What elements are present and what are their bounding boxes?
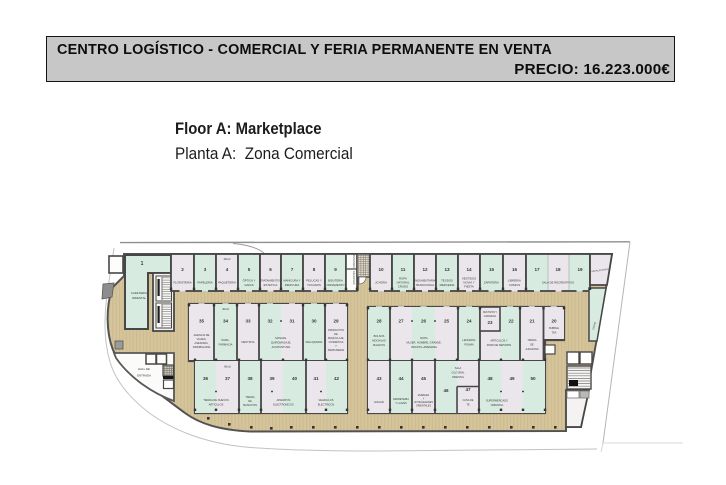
svg-text:SALA: SALA — [455, 367, 462, 370]
svg-text:MANICURA Y: MANICURA Y — [283, 279, 300, 283]
svg-text:BUBBLE: BUBBLE — [549, 327, 559, 330]
svg-text:TOCADOS: TOCADOS — [307, 283, 321, 287]
svg-text:21: 21 — [529, 319, 535, 324]
svg-text:DE: DE — [248, 400, 252, 403]
svg-text:CARNAVAL: CARNAVAL — [484, 315, 497, 318]
svg-text:SUPERMERCADO: SUPERMERCADO — [486, 399, 508, 403]
svg-text:MERCERIA: MERCERIA — [440, 283, 455, 287]
svg-text:22: 22 — [508, 319, 514, 324]
svg-text:ARTICULOS Y: ARTICULOS Y — [490, 339, 507, 343]
svg-text:ORIENTAL: ORIENTAL — [452, 376, 465, 379]
svg-text:ASCENSOR: ASCENSOR — [352, 271, 355, 285]
svg-text:TIENDA DE NUEVOS: TIENDA DE NUEVOS — [203, 398, 229, 402]
svg-text:42: 42 — [334, 376, 340, 381]
svg-text:MUJER, HOMBRE, GRANDE,: MUJER, HOMBRE, GRANDE, — [406, 341, 441, 345]
svg-text:FESTIVOS Y: FESTIVOS Y — [483, 311, 497, 314]
svg-text:23: 23 — [488, 320, 493, 325]
svg-text:FARMACIA: FARMACIA — [219, 343, 233, 347]
svg-text:CRUDO: CRUDO — [398, 285, 409, 289]
svg-text:40m2: 40m2 — [224, 257, 231, 261]
svg-text:45: 45 — [421, 376, 427, 381]
svg-text:INMOBILIARIA: INMOBILIARIA — [193, 345, 211, 349]
svg-text:38: 38 — [247, 376, 253, 381]
svg-text:31: 31 — [289, 319, 295, 324]
svg-text:TEJIDOS: TEJIDOS — [441, 279, 453, 283]
svg-text:LIBRERIA: LIBRERIA — [508, 279, 521, 283]
svg-text:ÓPTICA Y: ÓPTICA Y — [243, 278, 256, 283]
svg-text:JOYERIA: JOYERIA — [375, 281, 387, 285]
svg-text:FERRETERIA: FERRETERIA — [393, 398, 409, 401]
svg-text:ENTRADA: ENTRADA — [137, 374, 151, 378]
svg-text:CULTURAL: CULTURAL — [451, 372, 465, 375]
svg-text:ROPA DE DEPORTE: ROPA DE DEPORTE — [487, 343, 512, 347]
svg-text:AGENCIA DE: AGENCIA DE — [194, 333, 210, 337]
svg-text:17: 17 — [534, 267, 540, 272]
svg-text:43: 43 — [376, 376, 382, 381]
svg-text:48: 48 — [487, 376, 493, 381]
svg-text:LENCERIA: LENCERIA — [463, 338, 476, 342]
svg-text:7: 7 — [291, 267, 294, 272]
svg-text:9: 9 — [334, 267, 337, 272]
svg-text:MALETAS: MALETAS — [373, 343, 385, 347]
svg-text:26: 26 — [421, 319, 427, 324]
svg-text:PRODUCTOS: PRODUCTOS — [328, 329, 344, 332]
svg-text:TIENDA: TIENDA — [245, 396, 255, 399]
svg-text:ACUPUNTURA: ACUPUNTURA — [272, 345, 291, 349]
svg-text:50: 50 — [530, 376, 536, 381]
svg-text:ASESORIA,: ASESORIA, — [195, 341, 209, 345]
svg-text:25: 25 — [444, 319, 450, 324]
svg-text:24: 24 — [466, 319, 472, 324]
svg-text:41: 41 — [313, 376, 319, 381]
svg-text:28: 28 — [376, 319, 382, 324]
svg-text:11: 11 — [401, 267, 406, 272]
svg-text:20: 20 — [551, 319, 557, 324]
svg-text:ELECTRONICOS: ELECTRONICOS — [273, 403, 294, 407]
svg-text:2: 2 — [181, 267, 184, 272]
svg-text:PERFUMERIA: PERFUMERIA — [328, 349, 345, 352]
svg-text:TIENDA: TIENDA — [527, 339, 537, 342]
svg-text:DENTISTA: DENTISTA — [241, 340, 254, 344]
svg-text:44: 44 — [398, 376, 404, 381]
svg-text:47: 47 — [465, 387, 471, 392]
svg-text:TRADICIONAL: TRADICIONAL — [416, 283, 435, 287]
svg-text:TE: TE — [466, 404, 470, 407]
svg-text:TRATAMIENTOS: TRATAMIENTOS — [260, 279, 282, 283]
svg-text:COMICS: COMICS — [509, 283, 520, 287]
svg-text:JUGUETES: JUGUETES — [525, 348, 539, 351]
svg-text:BOLSOS: BOLSOS — [374, 334, 385, 338]
svg-text:37: 37 — [225, 376, 231, 381]
svg-text:BISUTERIA: BISUTERIA — [328, 279, 343, 283]
svg-text:12: 12 — [422, 267, 428, 272]
svg-text:5: 5 — [248, 267, 251, 272]
svg-text:ZAPATERIA: ZAPATERIA — [484, 281, 499, 285]
svg-text:ORIENTAL: ORIENTAL — [132, 296, 147, 300]
svg-text:QUIROMASAJE,: QUIROMASAJE, — [271, 341, 292, 345]
svg-text:1: 1 — [141, 261, 144, 267]
svg-text:VEHICULOS: VEHICULOS — [319, 398, 334, 402]
svg-text:TEA: TEA — [552, 332, 557, 335]
svg-text:40m2: 40m2 — [222, 307, 229, 311]
svg-text:ORIENTAL: ORIENTAL — [491, 403, 504, 407]
svg-text:APARATOS: APARATOS — [277, 398, 291, 402]
svg-text:46: 46 — [443, 388, 449, 393]
svg-text:30: 30 — [311, 319, 317, 324]
svg-text:40: 40 — [292, 376, 298, 381]
svg-text:PAPELERIA: PAPELERIA — [197, 281, 212, 285]
svg-text:15: 15 — [489, 267, 495, 272]
svg-text:PELUCAS Y: PELUCAS Y — [306, 279, 322, 283]
svg-text:39: 39 — [269, 376, 275, 381]
svg-text:DE: DE — [334, 333, 338, 336]
svg-text:SALA DE RECREATIVOS: SALA DE RECREATIVOS — [542, 281, 574, 285]
svg-text:18: 18 — [555, 267, 561, 272]
svg-text:29: 29 — [333, 319, 339, 324]
svg-text:4: 4 — [226, 267, 229, 272]
svg-text:PARA-: PARA- — [221, 338, 229, 342]
svg-text:PIJAMA: PIJAMA — [464, 343, 474, 347]
svg-text:MASCOTAS: MASCOTAS — [243, 404, 257, 407]
svg-text:35: 35 — [199, 319, 205, 324]
svg-text:27: 27 — [398, 319, 404, 324]
svg-text:ELECTRICOS: ELECTRICOS — [318, 403, 335, 407]
svg-text:14: 14 — [466, 267, 472, 272]
svg-text:MASAJE,: MASAJE, — [275, 336, 287, 340]
svg-text:36: 36 — [203, 376, 209, 381]
svg-text:8: 8 — [313, 267, 316, 272]
svg-text:FLORISTERIA: FLORISTERIA — [173, 281, 191, 285]
svg-text:10: 10 — [378, 267, 384, 272]
svg-text:FIESTA: FIESTA — [464, 285, 474, 289]
svg-text:CAFETERIA: CAFETERIA — [131, 291, 147, 295]
svg-text:CASA DE: CASA DE — [463, 399, 474, 402]
svg-text:19: 19 — [577, 267, 583, 272]
svg-text:PAQUETERIA: PAQUETERIA — [218, 281, 236, 285]
svg-text:HOGAR: HOGAR — [374, 400, 384, 404]
svg-text:ORNAMENTO: ORNAMENTO — [326, 283, 345, 287]
svg-text:34: 34 — [223, 319, 229, 324]
svg-text:49: 49 — [509, 376, 515, 381]
svg-text:GAFAS: GAFAS — [244, 283, 253, 287]
svg-text:PELUQUERIA: PELUQUERIA — [306, 340, 323, 344]
svg-text:VIAJES,: VIAJES, — [197, 337, 207, 341]
svg-text:INFANTIL+PREMAMA: INFANTIL+PREMAMA — [411, 345, 437, 349]
svg-text:COSMÉTICA: COSMÉTICA — [329, 341, 344, 344]
svg-text:DE: DE — [530, 344, 534, 347]
svg-text:6: 6 — [269, 267, 272, 272]
svg-text:33: 33 — [245, 319, 251, 324]
svg-text:Y LLAVES: Y LLAVES — [395, 402, 407, 405]
svg-text:MOCHILAS: MOCHILAS — [372, 339, 386, 343]
svg-text:ORIENTALES: ORIENTALES — [416, 405, 431, 408]
svg-text:HALL DE: HALL DE — [138, 367, 150, 371]
svg-text:13: 13 — [444, 267, 450, 272]
svg-text:32: 32 — [267, 319, 273, 324]
svg-text:3: 3 — [204, 267, 207, 272]
svg-text:ESTETICA: ESTETICA — [264, 283, 278, 287]
svg-text:ARTICULOS: ARTICULOS — [209, 403, 224, 407]
svg-text:MAQUILLAJE,: MAQUILLAJE, — [328, 337, 345, 340]
svg-text:60m2: 60m2 — [224, 365, 231, 369]
svg-text:INDUMENTARIA: INDUMENTARIA — [414, 279, 435, 283]
svg-text:ROPA: ROPA — [420, 336, 427, 340]
svg-text:PEDICURA: PEDICURA — [285, 283, 300, 287]
svg-text:16: 16 — [512, 267, 518, 272]
svg-text:ASCENSOR: ASCENSOR — [352, 255, 355, 269]
